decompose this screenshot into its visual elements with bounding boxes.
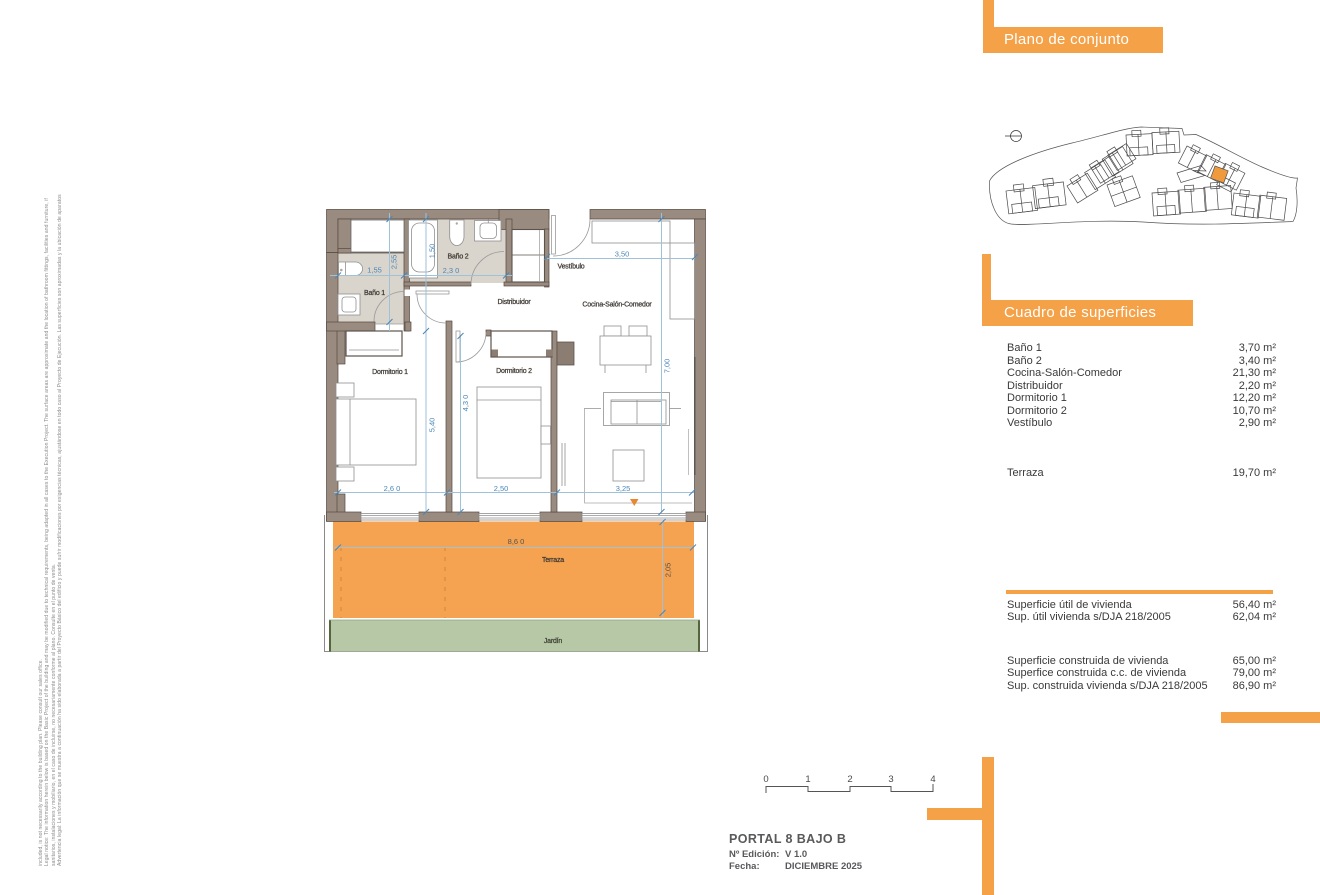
svg-text:1: 1 [805,774,810,785]
svg-text:8,6 0: 8,6 0 [508,537,525,546]
svg-text:3,25: 3,25 [616,484,631,493]
svg-text:2,55: 2,55 [390,255,399,270]
svg-text:Jardín: Jardín [544,638,563,645]
svg-text:Dormitorio 1: Dormitorio 1 [372,369,408,376]
svg-text:Dormitorio 2: Dormitorio 2 [496,368,532,375]
svg-text:1,50: 1,50 [428,244,437,259]
svg-text:4: 4 [930,774,935,785]
svg-text:0: 0 [763,774,768,785]
svg-text:Cocina-Salón-Comedor: Cocina-Salón-Comedor [582,302,652,309]
svg-text:Distribuidor: Distribuidor [498,299,532,306]
svg-text:3,50: 3,50 [615,250,630,259]
svg-text:2,50: 2,50 [494,484,509,493]
svg-text:Baño 1: Baño 1 [364,290,385,297]
svg-text:2: 2 [847,774,852,785]
svg-text:2,3 0: 2,3 0 [443,266,460,275]
svg-text:2,6 0: 2,6 0 [384,484,401,493]
svg-text:5,40: 5,40 [428,418,437,433]
svg-text:1,55: 1,55 [367,266,382,275]
svg-text:Vestíbulo: Vestíbulo [558,264,585,271]
svg-text:2,05: 2,05 [664,563,673,578]
svg-text:4,3 0: 4,3 0 [461,395,470,412]
svg-text:Terraza: Terraza [542,557,564,564]
svg-text:7,00: 7,00 [663,359,672,374]
svg-text:Baño 2: Baño 2 [448,254,469,261]
svg-text:3: 3 [888,774,893,785]
